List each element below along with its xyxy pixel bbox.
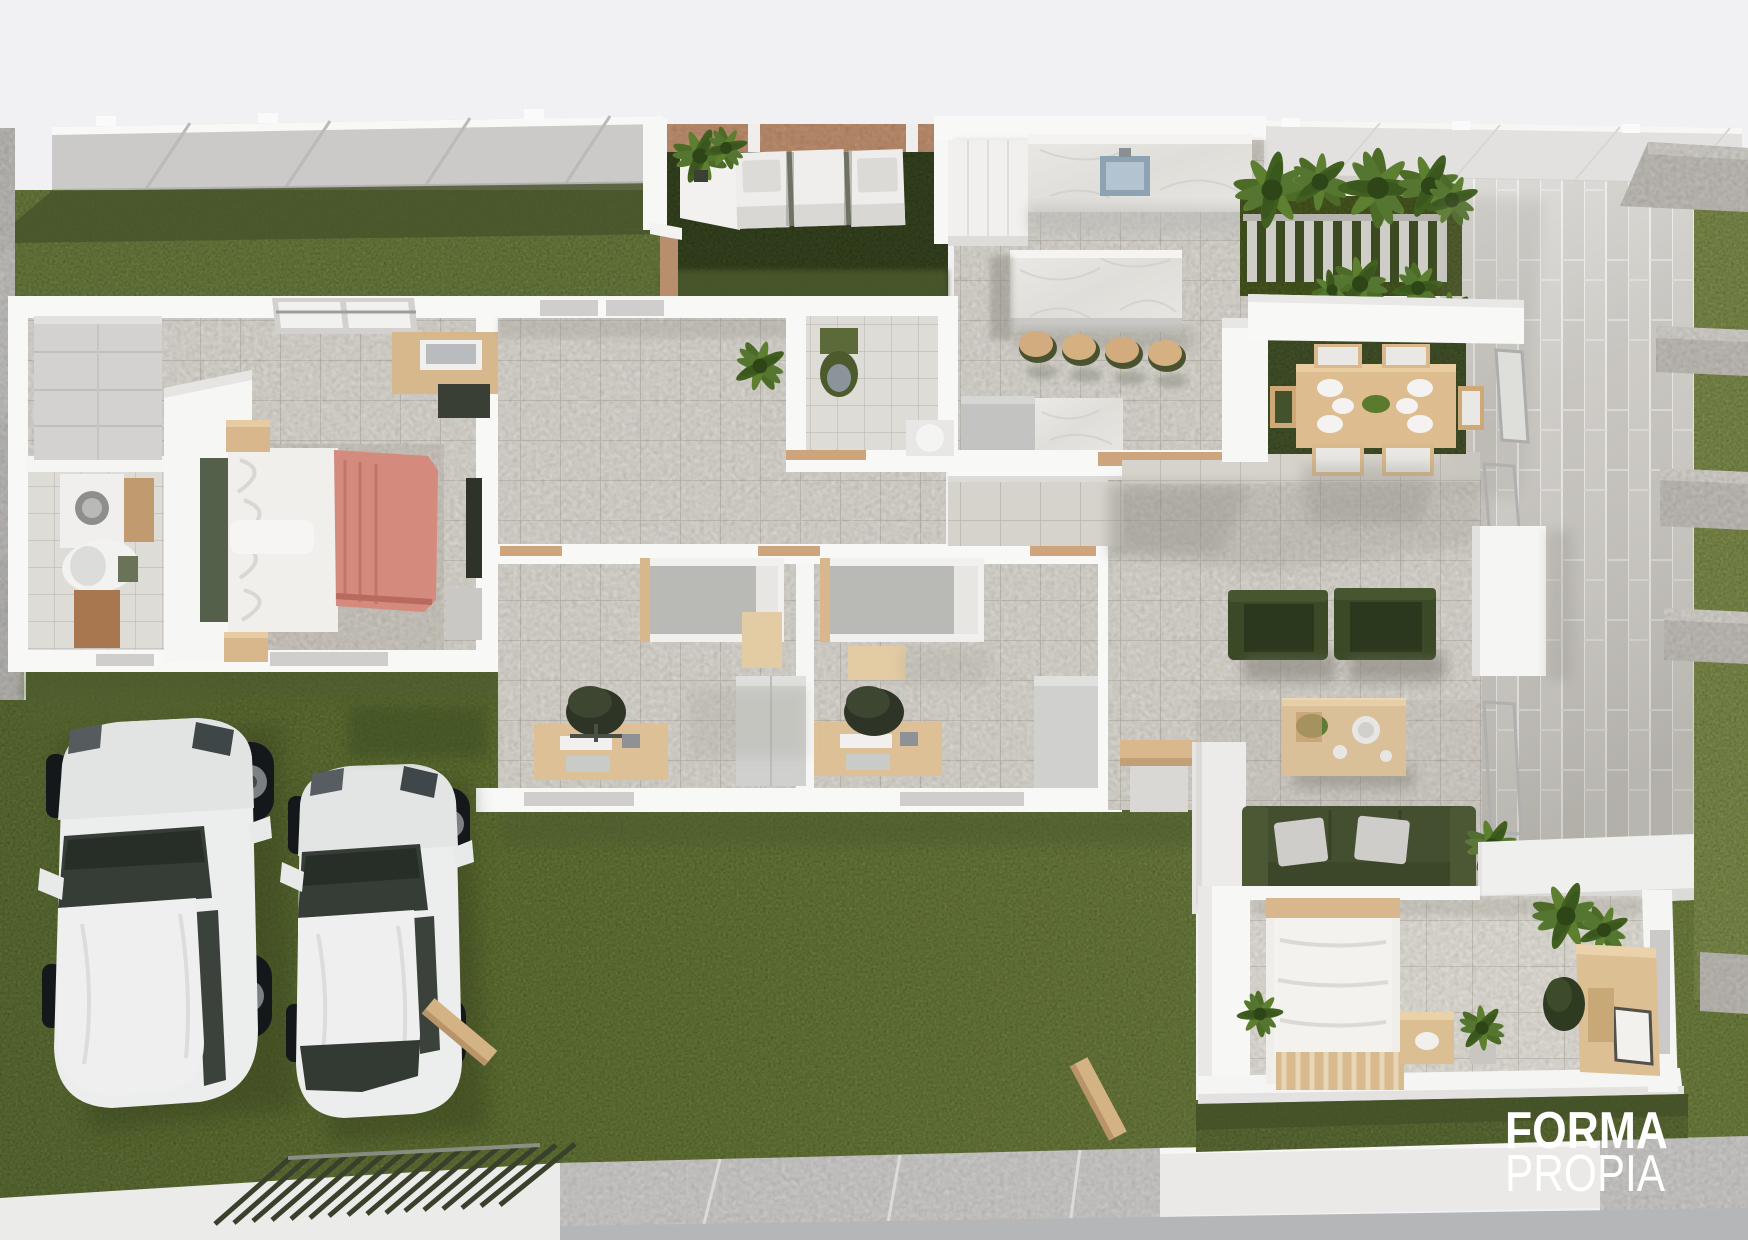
svg-text:PROPIA: PROPIA [1505, 1145, 1665, 1203]
